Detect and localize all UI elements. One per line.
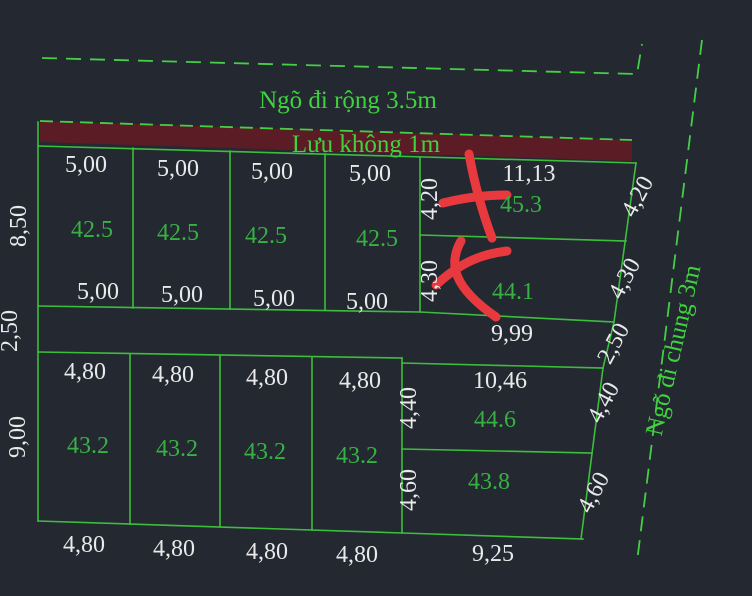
outer-boundary-top-dashed [42,44,642,74]
alley-right-label: Ngõ đi chung 3m [641,262,707,438]
plot2-area: 42.5 [157,220,199,246]
road-right-width-dim: 2,50 [592,319,635,368]
plot10-area: 43.2 [336,443,378,469]
plot10-top-dim: 4,80 [339,368,381,394]
plot5-area: 45.3 [500,192,542,218]
plot-divider-44-43 [402,449,592,453]
plot2-bottom-dim: 5,00 [161,282,203,308]
bottom-block-left-height-dim: 9,00 [5,416,31,458]
plot1-bottom-dim: 5,00 [77,279,119,305]
plot5-right-dim: 4,20 [616,172,659,221]
plot4-bottom-dim: 5,00 [346,289,388,315]
plot11-right-dim: 4,40 [582,378,625,427]
plot-map-svg: Ngõ đi rộng 3.5m Lưu không 1m Ngõ đi chu… [0,0,752,596]
cadastral-drawing: Ngõ đi rộng 3.5m Lưu không 1m Ngõ đi chu… [0,0,752,596]
plot11-area: 44.6 [474,407,516,433]
plot11-left-dim: 4,40 [396,387,422,429]
plot-divider-45-44 [420,235,626,241]
plot2-top-dim: 5,00 [157,156,199,182]
plot3-top-dim: 5,00 [251,159,293,185]
plot6-area: 44.1 [492,279,534,305]
road-left-width-dim: 2,50 [0,310,23,352]
plot1-top-dim: 5,00 [65,152,107,178]
plot8-area: 43.2 [156,436,198,462]
top-block-left-height-dim: 8,50 [6,205,32,247]
plot12-left-dim: 4,60 [396,469,422,511]
plot9-top-dim: 4,80 [246,365,288,391]
alley-top-label: Ngõ đi rộng 3.5m [259,87,437,114]
top-block-bottom-line [38,306,614,322]
plot1-area: 42.5 [71,217,113,243]
plot9-area: 43.2 [244,439,286,465]
bottom-block-bottom-line [38,521,583,539]
plot7-top-dim: 4,80 [64,359,106,385]
plot4-area: 42.5 [356,226,398,252]
plot6-right-dim: 4,30 [603,254,646,303]
plot7-area: 43.2 [67,433,109,459]
plot3-bottom-dim: 5,00 [253,286,295,312]
plot3-area: 42.5 [245,223,287,249]
plot8-top-dim: 4,80 [152,362,194,388]
road-length-dim: 9,99 [491,321,533,347]
red-cross-mark [443,195,507,203]
buffer-strip-label: Lưu không 1m [292,131,441,158]
plot5-top-dim: 11,13 [502,161,555,187]
plot11-top-dim: 10,46 [473,368,527,394]
plot4-top-dim: 5,00 [349,161,391,187]
plot6-left-dim: 4,30 [417,260,443,302]
plot12-right-dim: 4,60 [572,468,615,517]
plot7-bottom-dim: 4,80 [63,532,105,558]
plot5-left-dim: 4,20 [417,178,443,220]
plot8-bottom-dim: 4,80 [153,536,195,562]
plot12-area: 43.8 [468,469,510,495]
plot12-bottom-dim: 9,25 [472,541,514,567]
plot9-bottom-dim: 4,80 [246,539,288,565]
plot10-bottom-dim: 4,80 [336,542,378,568]
